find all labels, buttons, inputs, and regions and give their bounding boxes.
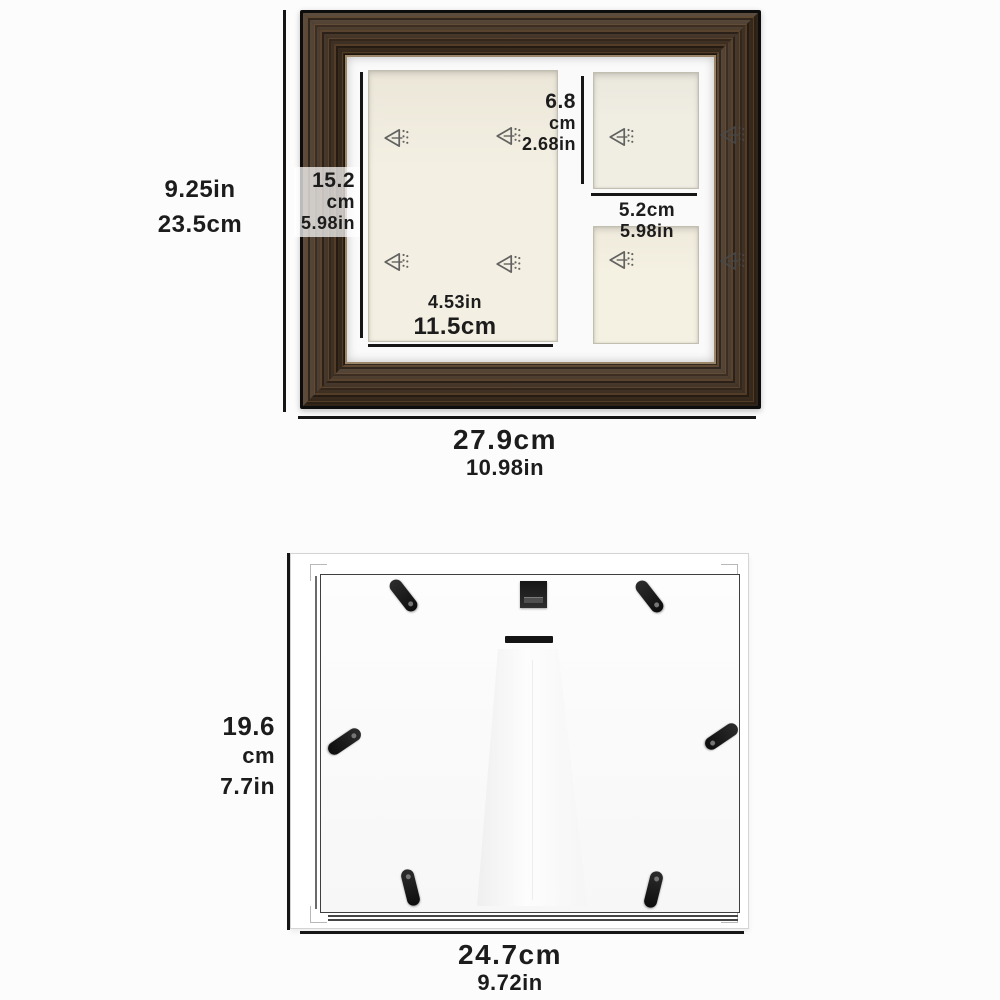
clip-screw-hole <box>709 739 716 746</box>
clip-screw-hole <box>653 876 659 882</box>
back-bottom-edge-line <box>328 919 738 921</box>
back-height-cm-unit: cm <box>180 742 275 770</box>
back-width-line <box>300 931 744 934</box>
small-opening-bottom <box>593 226 699 344</box>
watermark-logo-icon <box>382 126 410 150</box>
front-outer-height-line <box>283 10 286 412</box>
watermark-logo-icon <box>607 125 635 149</box>
easel-seam <box>532 660 533 900</box>
clip-screw-hole <box>407 601 414 608</box>
frame-wood-bottom <box>303 362 758 406</box>
main-opening-height-in: 5.98in <box>299 213 355 234</box>
back-height-cm-value: 19.6 <box>180 710 275 742</box>
small-opening-width-label: 5.2cm 5.98in <box>597 200 697 242</box>
back-panel-edge-line <box>315 576 317 909</box>
clip-screw-hole <box>653 602 660 609</box>
main-opening-width-label: 4.53in 11.5cm <box>380 292 530 340</box>
clip-screw-hole <box>405 874 411 880</box>
front-outer-width-label: 27.9cm 10.98in <box>380 424 630 480</box>
back-height-in: 7.7in <box>180 770 275 802</box>
back-bottom-edge-line <box>328 915 738 917</box>
small-opening-height-cm-value: 6.8 <box>508 90 576 113</box>
back-height-label: 19.6 cm 7.7in <box>180 710 275 802</box>
front-outer-height-cm: 23.5cm <box>140 207 260 243</box>
small-opening-height-line <box>581 76 584 184</box>
main-opening-height-cm-unit: cm <box>299 192 355 213</box>
small-opening-height-in: 2.68in <box>508 133 576 155</box>
product-dimension-image: 9.25in 23.5cm 15.2 cm 5.98in 4.53in <box>0 0 1000 1000</box>
watermark-logo-icon <box>718 123 746 147</box>
small-opening-height-cm-unit: cm <box>508 113 576 133</box>
watermark-logo-icon <box>494 252 522 276</box>
watermark-logo-icon <box>718 249 746 273</box>
small-opening-width-in: 5.98in <box>597 221 697 242</box>
main-opening-width-line <box>368 344 553 347</box>
small-opening-width-cm: 5.2cm <box>597 200 697 221</box>
hanger-bracket-icon <box>520 581 547 608</box>
frame-wood-right <box>714 13 758 406</box>
frame-wood-top <box>303 13 758 57</box>
small-opening-height-label: 6.8 cm 2.68in <box>508 90 576 155</box>
back-width-in: 9.72in <box>385 971 635 995</box>
watermark-logo-icon <box>607 248 635 272</box>
main-opening-width-cm: 11.5cm <box>380 313 530 340</box>
easel-hinge <box>505 636 553 643</box>
main-opening-height-cm-value: 15.2 <box>299 169 355 192</box>
watermark-logo-icon <box>382 250 410 274</box>
hanger-slot <box>524 597 543 603</box>
back-width-cm: 24.7cm <box>385 938 635 971</box>
small-opening-width-line <box>591 193 697 196</box>
main-opening-width-in: 4.53in <box>380 292 530 313</box>
back-width-label: 24.7cm 9.72in <box>385 938 635 995</box>
front-outer-width-in: 10.98in <box>380 456 630 480</box>
front-outer-width-cm: 27.9cm <box>380 424 630 456</box>
front-outer-width-line <box>298 416 756 419</box>
front-outer-height-label: 9.25in 23.5cm <box>140 173 260 243</box>
clip-screw-hole <box>350 732 357 739</box>
main-opening-height-line <box>360 72 363 338</box>
front-outer-height-in: 9.25in <box>140 173 260 207</box>
main-opening-height-label: 15.2 cm 5.98in <box>294 167 360 237</box>
